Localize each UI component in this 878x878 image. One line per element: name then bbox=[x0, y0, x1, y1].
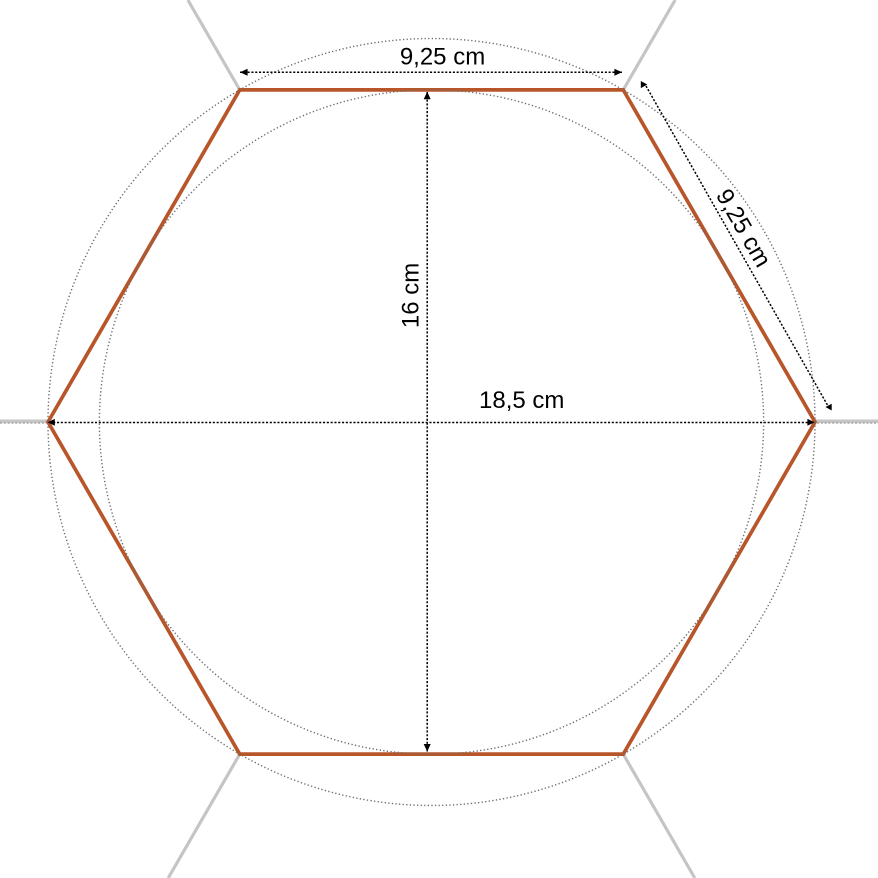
svg-text:9,25 cm: 9,25 cm bbox=[400, 44, 485, 71]
svg-text:16 cm: 16 cm bbox=[398, 263, 425, 328]
svg-text:18,5 cm: 18,5 cm bbox=[479, 387, 564, 414]
